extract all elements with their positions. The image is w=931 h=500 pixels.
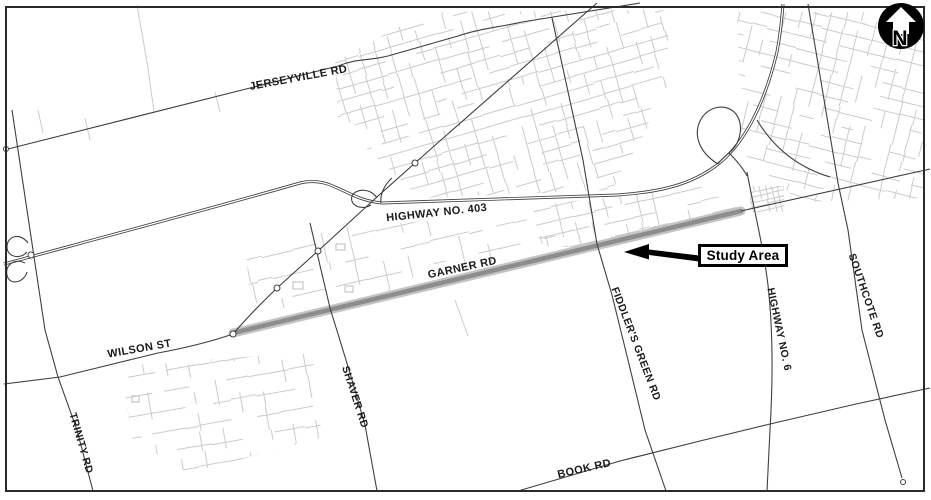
study-area-label: Study Area: [707, 248, 780, 263]
study-area-callout: Study Area: [698, 244, 788, 267]
north-letter: N: [892, 27, 907, 50]
map-canvas: JERSEYVILLE RDHIGHWAY NO. 403GARNER RDWI…: [0, 0, 931, 500]
map-background: [0, 0, 931, 500]
map-figure: JERSEYVILLE RDHIGHWAY NO. 403GARNER RDWI…: [0, 0, 931, 500]
